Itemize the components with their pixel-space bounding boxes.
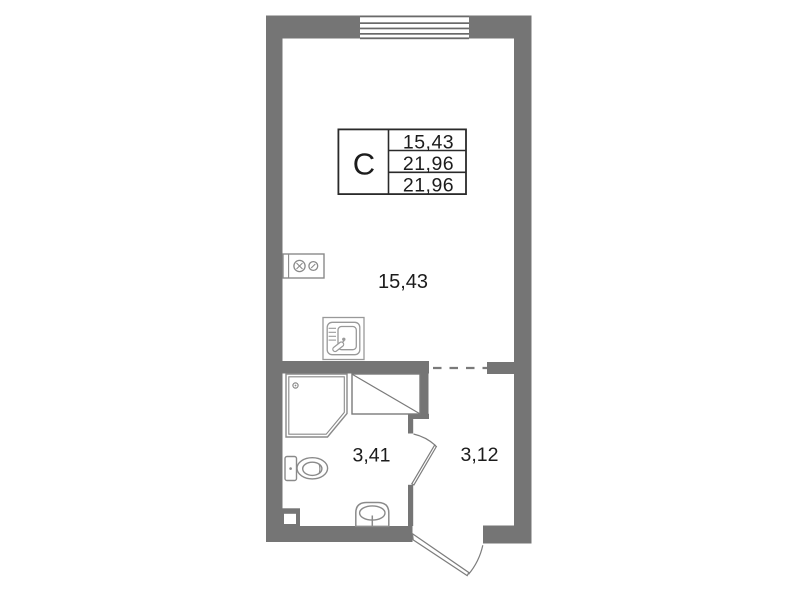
svg-text:3,41: 3,41 [353,445,391,467]
svg-text:21,96: 21,96 [403,153,454,175]
svg-text:21,96: 21,96 [403,175,454,197]
svg-text:С: С [353,147,375,182]
svg-text:3,12: 3,12 [461,444,499,466]
svg-text:15,43: 15,43 [403,131,454,153]
svg-text:15,43: 15,43 [378,271,428,293]
